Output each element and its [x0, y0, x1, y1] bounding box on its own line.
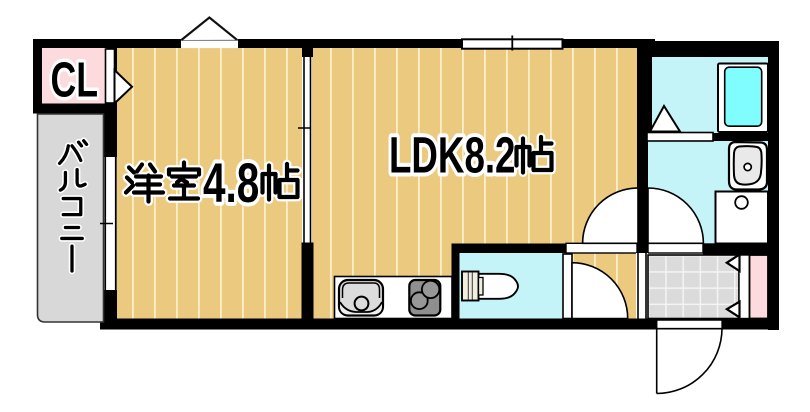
- svg-text:LDK8.2: LDK8.2: [389, 128, 515, 184]
- svg-text:4.8: 4.8: [203, 153, 259, 215]
- svg-text:CL: CL: [51, 53, 99, 108]
